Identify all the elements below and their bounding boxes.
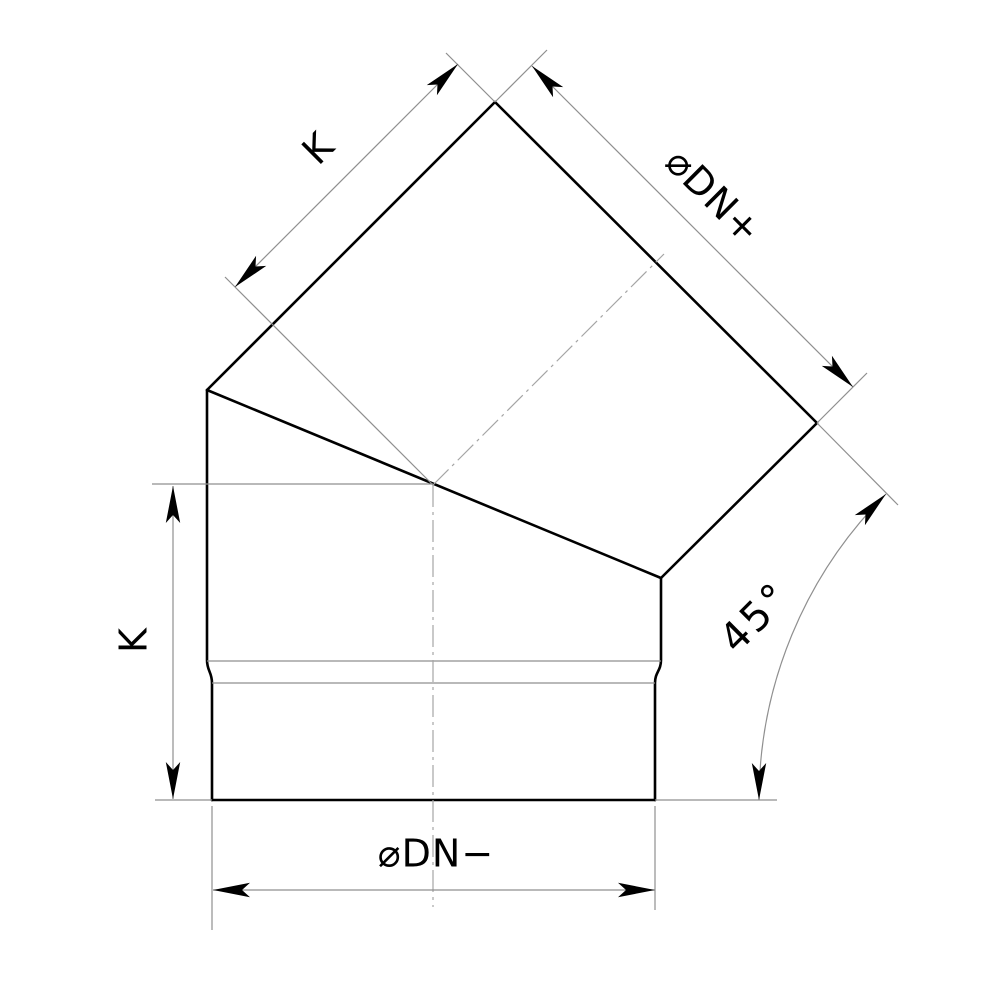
extension-line — [817, 373, 867, 423]
dimension-dn-plus: ⌀DN+ — [495, 50, 867, 423]
centerlines — [433, 254, 664, 907]
extension-line — [446, 53, 495, 102]
upper-pipe-segment — [207, 102, 817, 578]
label-dn-plus: ⌀DN+ — [657, 140, 770, 253]
dimension-line — [235, 64, 458, 287]
dimension-angle-45: 45° — [655, 423, 898, 800]
axis-45-centerline — [433, 254, 664, 485]
drawing-canvas: K ⌀DN+ K ⌀DN− — [0, 0, 1000, 1000]
arrow-down-icon — [752, 763, 766, 800]
dimension-dn-minus: ⌀DN− — [212, 806, 655, 930]
label-dn-minus: ⌀DN− — [378, 832, 494, 876]
arrow-up-right-icon — [855, 489, 891, 525]
label-k-slant: K — [294, 123, 343, 172]
lower-pipe-left-edge — [207, 390, 212, 800]
lower-pipe-right-edge — [655, 578, 661, 800]
dimension-k-slant: K — [225, 53, 495, 485]
extension-line — [225, 277, 433, 485]
elbow-45-drawing: K ⌀DN+ K ⌀DN− — [0, 0, 1000, 1000]
extension-line — [817, 423, 898, 505]
dimension-line — [532, 66, 853, 387]
dimension-k-vertical: K — [112, 484, 434, 800]
angle-arc — [759, 494, 886, 800]
label-k-vertical: K — [112, 627, 156, 653]
